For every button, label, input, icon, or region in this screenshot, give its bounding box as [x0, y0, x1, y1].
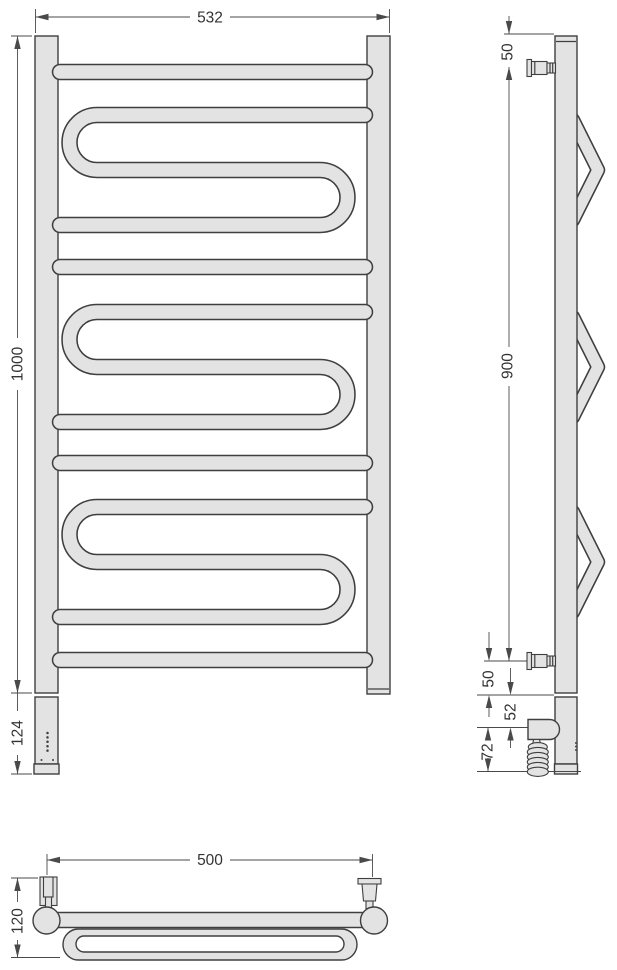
heating-unit-body	[35, 697, 58, 764]
side-indicator-dots	[575, 742, 577, 751]
dim-depth-label: 120	[9, 908, 26, 934]
heating-unit-cap	[34, 764, 59, 774]
serpentine-coil-2	[60, 312, 365, 422]
cap-screw-left	[41, 759, 43, 761]
dim-bottom-offset-label: 50	[480, 670, 497, 688]
right-rail	[367, 36, 390, 694]
dim-spacing: 500	[47, 852, 373, 877]
side-rail	[555, 36, 577, 693]
mount-bracket-left	[40, 877, 57, 908]
dim-box-offset-label: 52	[502, 703, 519, 720]
rail-section-left	[33, 907, 60, 934]
left-rail	[35, 36, 58, 693]
dim-width-label: 532	[197, 10, 223, 27]
mount-bracket-right	[358, 879, 381, 909]
side-rail-cap	[555, 764, 578, 774]
dim-heater-label: 124	[9, 720, 26, 746]
side-view: 50 900 50 52	[477, 16, 598, 776]
wall-bracket-bottom	[527, 653, 556, 670]
wall-bracket-top	[527, 60, 556, 77]
towel-warmer-technical-drawing: 532 1000 124	[0, 0, 617, 970]
bottom-view: 500 120	[9, 852, 387, 960]
dim-width: 532	[36, 9, 390, 33]
serpentine-coil-3	[60, 507, 365, 617]
heating-unit	[34, 697, 59, 774]
technical-drawing-page: 532 1000 124	[0, 0, 617, 970]
front-view: 532 1000 124	[9, 9, 390, 774]
dim-span-label: 900	[499, 353, 516, 379]
dim-height-label: 1000	[9, 346, 26, 381]
power-box	[528, 720, 560, 740]
dim-top-offset-label: 50	[499, 43, 516, 61]
coil-loop-inner	[76, 936, 344, 952]
dim-span: 900	[484, 67, 527, 661]
spiral-cable	[527, 740, 548, 777]
dim-spacing-label: 500	[197, 852, 223, 869]
serpentine-coil-1	[60, 115, 365, 225]
rail-section-right	[361, 907, 388, 934]
dim-box-zone-label: 72	[479, 743, 496, 760]
cap-screw-right	[52, 759, 54, 761]
dim-height: 1000 124	[9, 36, 32, 774]
